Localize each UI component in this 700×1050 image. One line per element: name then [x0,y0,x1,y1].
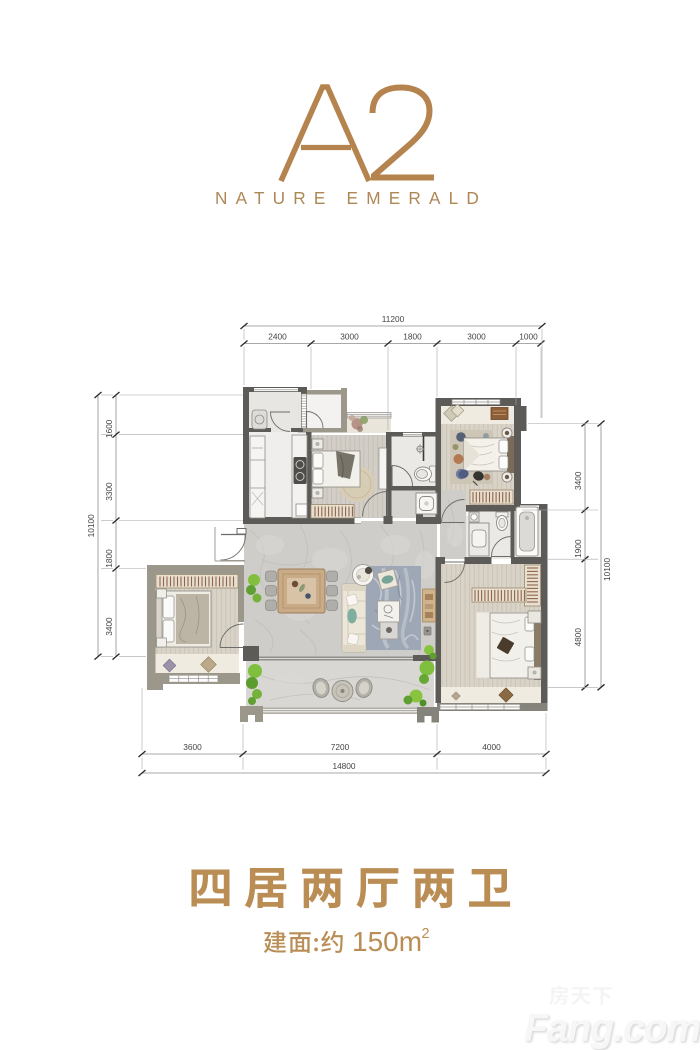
svg-text:11200: 11200 [382,314,405,324]
svg-text:2: 2 [422,926,430,942]
svg-text:10100: 10100 [86,514,96,537]
svg-text:3400: 3400 [104,617,114,636]
svg-text:3300: 3300 [104,482,114,501]
svg-text:2400: 2400 [268,332,287,342]
svg-text:14800: 14800 [332,761,355,771]
svg-text:1000: 1000 [519,332,538,342]
svg-text:Fang.com: Fang.com [524,1007,700,1050]
svg-text:1800: 1800 [403,332,422,342]
svg-text:4800: 4800 [573,628,583,647]
svg-text:NATURE EMERALD: NATURE EMERALD [215,188,487,208]
svg-text:150m: 150m [352,926,422,957]
svg-text:3000: 3000 [340,332,359,342]
svg-text:3600: 3600 [183,742,202,752]
svg-text:3000: 3000 [467,332,486,342]
svg-text:3400: 3400 [573,471,583,490]
svg-text:1800: 1800 [104,549,114,568]
svg-text:10100: 10100 [602,557,612,580]
svg-text:7200: 7200 [331,742,350,752]
svg-text:1900: 1900 [573,539,583,558]
svg-text:1600: 1600 [104,419,114,438]
svg-text:4000: 4000 [482,742,501,752]
